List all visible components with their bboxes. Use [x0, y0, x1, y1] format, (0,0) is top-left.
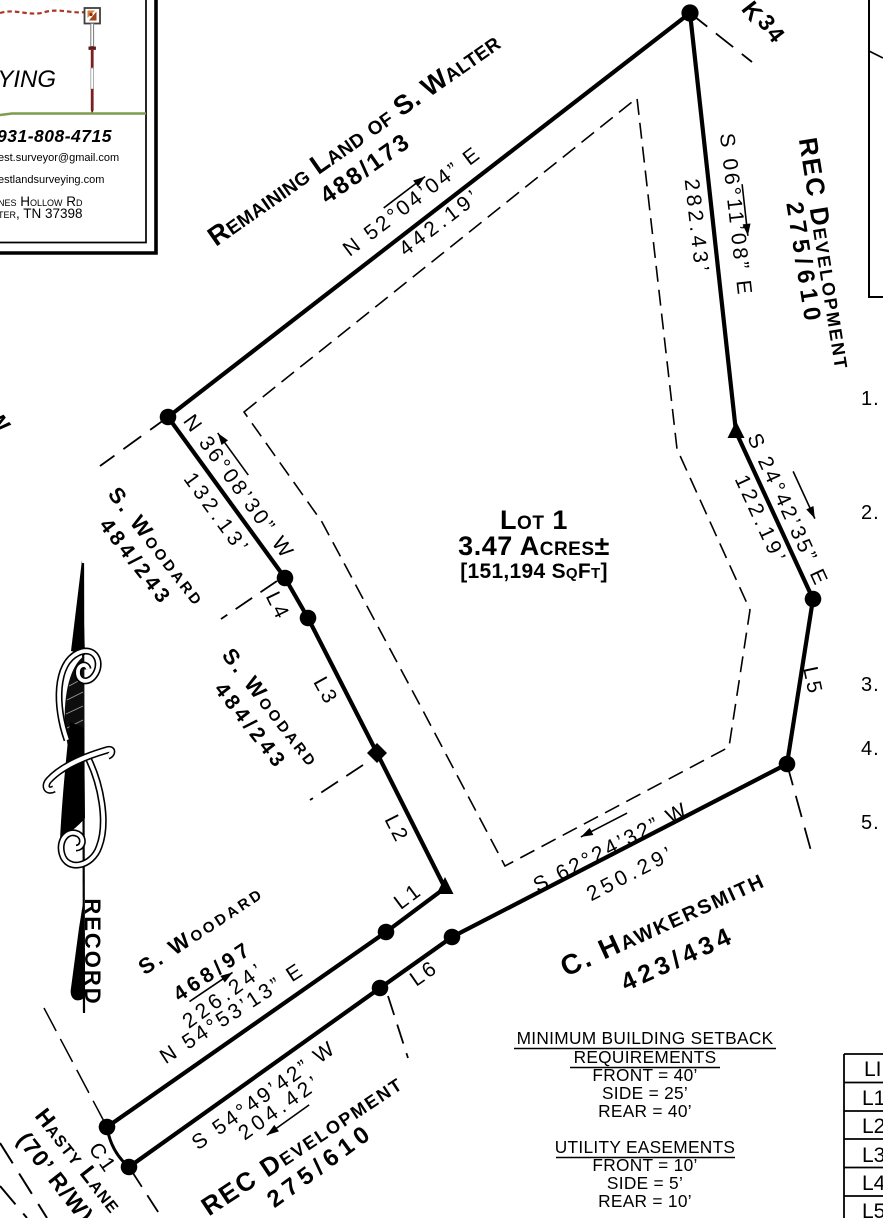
- svg-text:3.47 Acres±: 3.47 Acres±: [458, 531, 610, 561]
- svg-text:3.: 3.: [861, 674, 880, 696]
- svg-text:REQUIREMENTS: REQUIREMENTS: [574, 1047, 717, 1067]
- svg-text:RECORD: RECORD: [80, 898, 105, 1005]
- svg-text:L4: L4: [862, 1172, 883, 1195]
- svg-text:estlandsurveying.com: estlandsurveying.com: [0, 174, 104, 186]
- svg-text:L1: L1: [862, 1087, 883, 1110]
- svg-text:L5: L5: [862, 1200, 883, 1218]
- svg-text:2.: 2.: [861, 502, 880, 524]
- svg-text:REAR = 10’: REAR = 10’: [598, 1191, 692, 1211]
- svg-text:L3: L3: [862, 1144, 883, 1167]
- svg-text:UTILITY EASEMENTS: UTILITY EASEMENTS: [555, 1137, 736, 1157]
- svg-text:MINIMUM BUILDING SETBACK: MINIMUM BUILDING SETBACK: [517, 1028, 774, 1048]
- svg-text:FRONT = 10’: FRONT = 10’: [592, 1155, 697, 1175]
- svg-text:4.: 4.: [861, 738, 880, 760]
- svg-text:[151,194 SqFt]: [151,194 SqFt]: [460, 560, 608, 583]
- svg-text:1.: 1.: [861, 388, 880, 410]
- svg-text:SIDE = 5’: SIDE = 5’: [607, 1173, 683, 1193]
- svg-text:YING: YING: [0, 66, 56, 93]
- svg-text:FRONT = 40’: FRONT = 40’: [592, 1065, 697, 1085]
- svg-text:931-808-4715: 931-808-4715: [0, 126, 112, 146]
- svg-text:LINE: LINE: [864, 1058, 883, 1081]
- svg-text:est.surveyor@gmail.com: est.surveyor@gmail.com: [0, 152, 119, 164]
- svg-text:REAR = 40’: REAR = 40’: [598, 1101, 692, 1121]
- svg-text:L2: L2: [862, 1115, 883, 1138]
- svg-text:5.: 5.: [861, 812, 880, 834]
- svg-text:SIDE = 25’: SIDE = 25’: [602, 1083, 688, 1103]
- svg-text:ter, TN 37398: ter, TN 37398: [0, 206, 83, 221]
